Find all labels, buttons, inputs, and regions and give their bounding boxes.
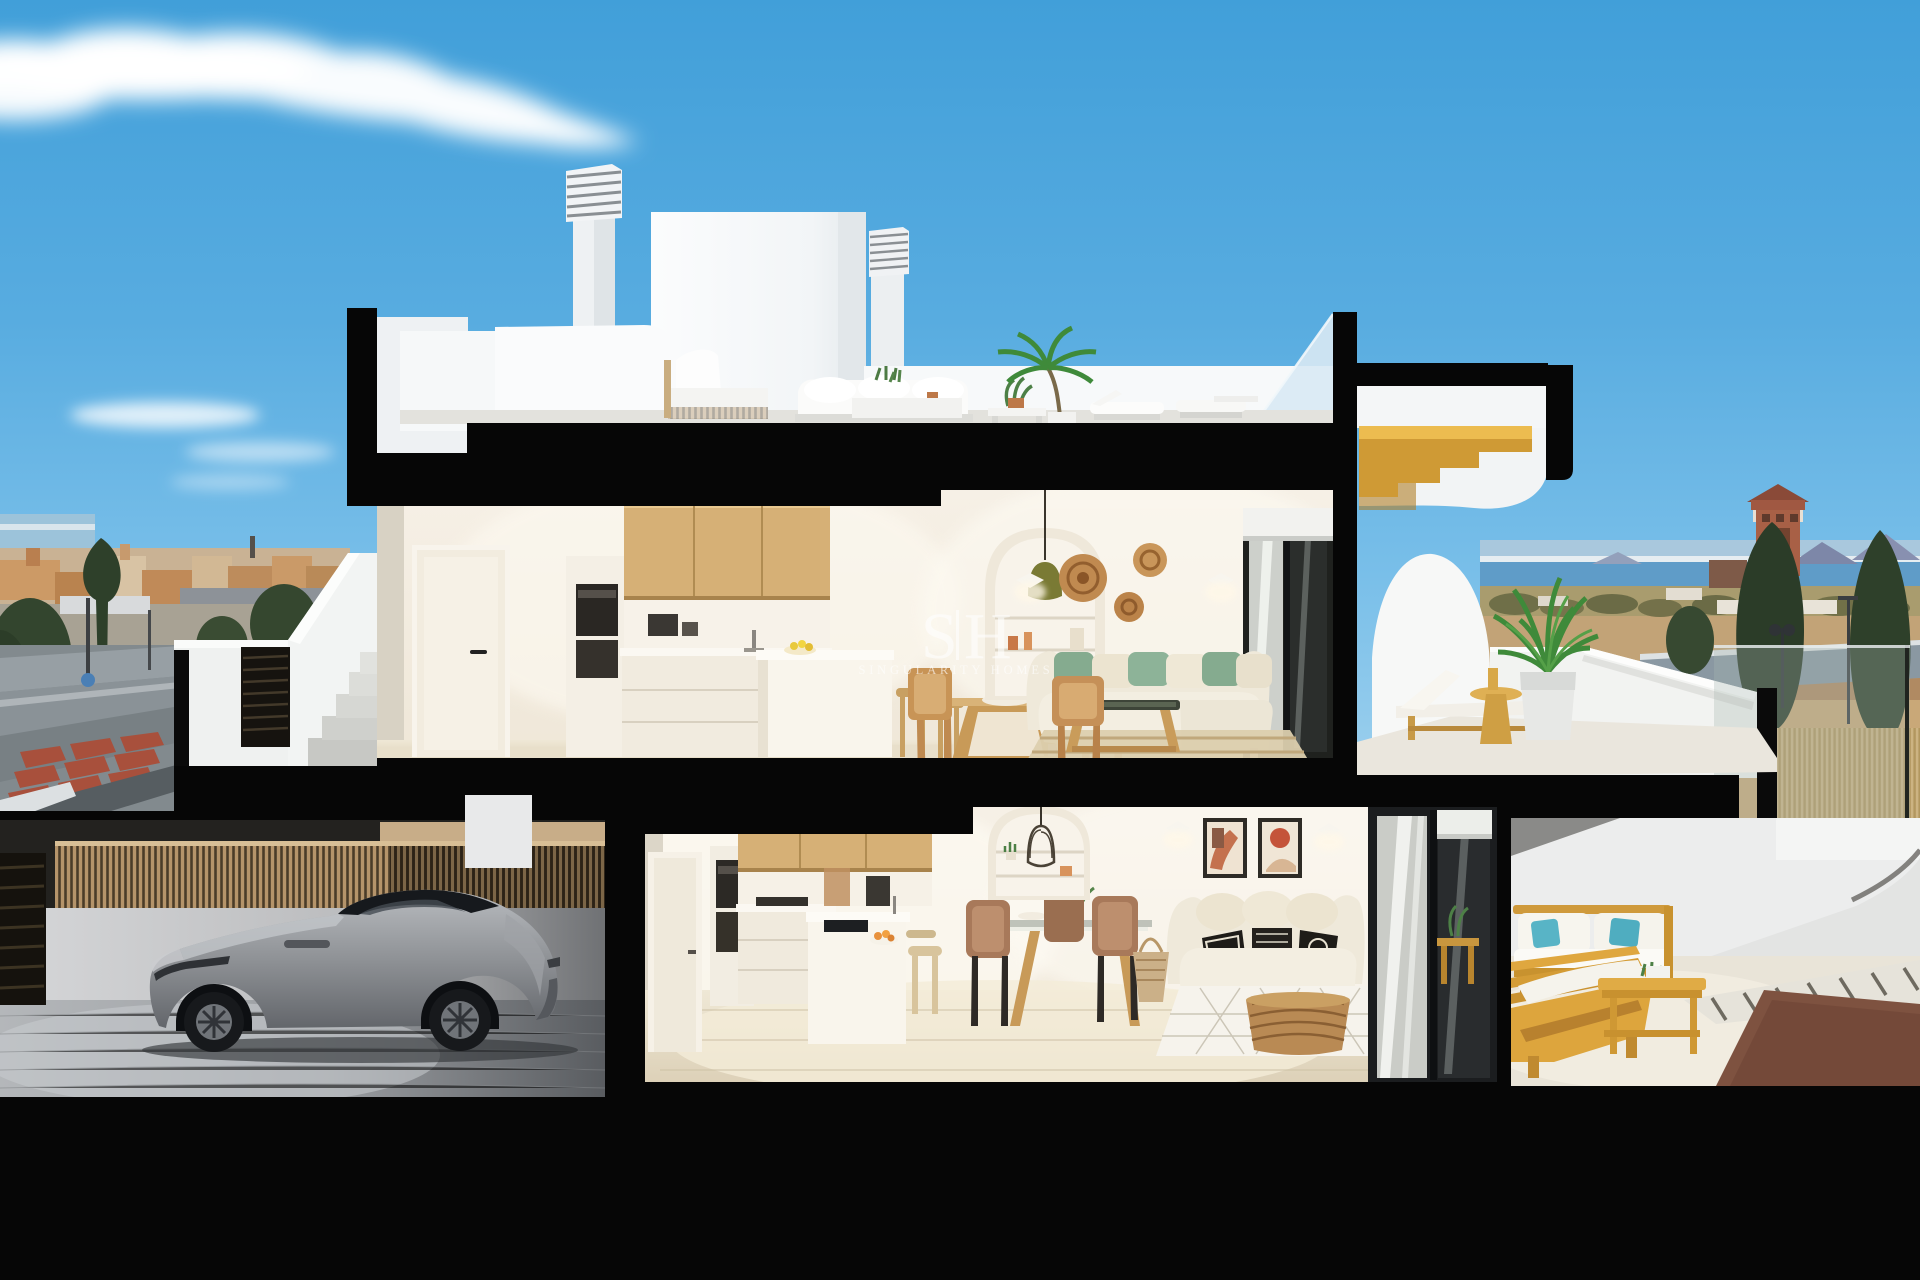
svg-text:SINGULARITY HOMES: SINGULARITY HOMES xyxy=(858,663,1053,677)
